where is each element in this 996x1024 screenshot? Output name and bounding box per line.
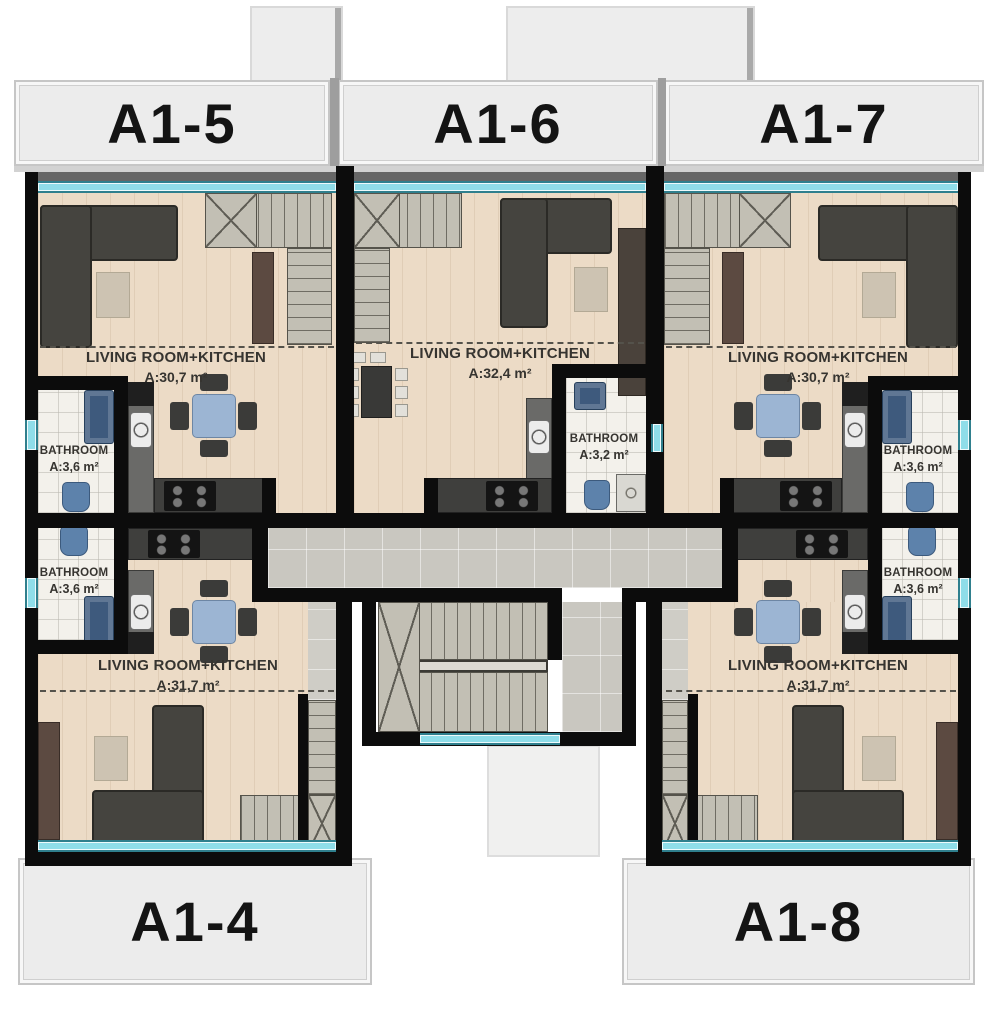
a1-4-bathroom-wall-bottom [25, 640, 128, 654]
a1-5-sofa-arm [40, 205, 92, 348]
a1-6-stairs-winder [354, 193, 400, 248]
unit-label-a1-6: A1-6 [338, 80, 658, 166]
a1-6-kitchen-sink [528, 420, 550, 454]
wall-a1-5-a1-6 [336, 166, 354, 520]
a1-5-rug [96, 272, 130, 318]
a1-7-chair [802, 402, 821, 430]
a1-8-stairs-flight [662, 700, 688, 795]
a1-6-rug [574, 267, 608, 312]
a1-8-sofa-back [792, 790, 904, 845]
a1-4-toilet [60, 526, 88, 556]
a1-5-living-label: LIVING ROOM+KITCHEN A:30,7 m² [46, 348, 306, 386]
a1-7-bathroom-label: BATHROOM A:3,6 m² [876, 444, 960, 475]
a1-5-dining-table [192, 394, 236, 438]
a1-7-chair [734, 402, 753, 430]
a1-6-chair [395, 404, 408, 417]
a1-7-kitchen-sink [844, 412, 866, 448]
unit-label-a1-7: A1-7 [664, 80, 984, 166]
room-area: A:3,6 m² [876, 581, 960, 597]
a1-5-chair [238, 402, 257, 430]
a1-7-stove [780, 481, 832, 511]
a1-7-kitchen-wall-stub [720, 478, 734, 528]
a1-8-appliance [842, 632, 868, 654]
a1-6-chair [395, 386, 408, 399]
stair-passage [562, 602, 622, 732]
a1-5-stove [164, 481, 216, 511]
a1-8-stove [796, 530, 848, 558]
room-area: A:30,7 m² [46, 368, 306, 386]
a1-8-dining-table [756, 600, 800, 644]
room-area: A:31,7 m² [58, 676, 318, 694]
stair-passage-wall [548, 588, 562, 660]
top-wall [25, 172, 971, 181]
room-name: BATHROOM [876, 566, 960, 581]
a1-8-stairs-side-wall [688, 694, 698, 852]
a1-7-stairs-winder [739, 193, 791, 248]
a1-5-kitchen-sink [130, 412, 152, 448]
a1-8-kitchen-sink [844, 594, 866, 630]
room-name: LIVING ROOM+KITCHEN [46, 348, 306, 368]
unit-label-a1-8: A1-8 [622, 858, 975, 985]
a1-8-rug [862, 736, 896, 781]
roof-protrusion-middle [506, 6, 755, 82]
room-area: A:31,7 m² [688, 676, 948, 694]
a1-8-chair [734, 608, 753, 636]
a1-6-toilet [584, 480, 610, 510]
roof-protrusion-bottom [487, 745, 600, 857]
unit-label-a1-5: A1-5 [14, 80, 330, 166]
room-area: A:32,4 m² [370, 364, 630, 382]
a1-8-window [662, 840, 958, 852]
unit-label-a1-4: A1-4 [18, 858, 372, 985]
room-name: LIVING ROOM+KITCHEN [688, 348, 948, 368]
room-name: BATHROOM [876, 444, 960, 459]
a1-4-sofa-back [92, 790, 204, 845]
room-name: LIVING ROOM+KITCHEN [58, 656, 318, 676]
a1-8-chair [802, 608, 821, 636]
a1-6-sofa-arm [500, 198, 548, 328]
central-stairs-window [420, 733, 560, 745]
roof-protrusion-left [250, 6, 343, 82]
a1-5-toilet [62, 482, 90, 512]
a1-4-chair [200, 580, 228, 597]
a1-4-chair [238, 608, 257, 636]
a1-4-bathroom-label: BATHROOM A:3,6 m² [32, 566, 116, 597]
a1-6-bathroom-label: BATHROOM A:3,2 m² [562, 432, 646, 463]
a1-4-appliance [128, 632, 154, 654]
a1-7-sofa-arm [906, 205, 958, 348]
floor-plan: A1-5 A1-6 A1-7 A1-4 A1-8 [0, 0, 996, 1024]
central-stairs-landing [378, 602, 420, 732]
mid-wall [25, 513, 971, 528]
label-divider-right [658, 78, 666, 166]
a1-4-window [38, 840, 336, 852]
wall-a1-6-a1-7 [646, 166, 664, 520]
a1-5-bathroom-wall-right [114, 376, 128, 528]
a1-6-bath-sink [574, 382, 606, 410]
a1-6-bathroom-window [651, 424, 663, 452]
a1-4-rug [94, 736, 128, 781]
a1-4-living-label: LIVING ROOM+KITCHEN A:31,7 m² [58, 656, 318, 694]
room-area: A:30,7 m² [688, 368, 948, 386]
room-name: LIVING ROOM+KITCHEN [370, 344, 630, 364]
corridor-bottom-wall-left [252, 588, 548, 602]
a1-4-kitchen-sink [130, 594, 152, 630]
central-stairs-left-wall [362, 588, 376, 746]
a1-5-chair [170, 402, 189, 430]
a1-8-living-label: LIVING ROOM+KITCHEN A:31,7 m² [688, 656, 948, 694]
central-stairs-right-wall [622, 588, 636, 746]
a1-8-chair [764, 580, 792, 597]
a1-7-wardrobe [722, 252, 744, 344]
room-name: BATHROOM [32, 444, 116, 459]
a1-8-tv-unit [936, 722, 958, 840]
a1-4-right-wall [336, 588, 352, 866]
a1-4-stairs-side-wall [298, 694, 308, 852]
bottom-wall-left [25, 852, 345, 866]
room-name: LIVING ROOM+KITCHEN [688, 656, 948, 676]
corridor-bottom-wall-right [622, 588, 738, 602]
a1-4-bathroom-wall-right [114, 528, 128, 654]
a1-7-toilet [906, 482, 934, 512]
a1-5-stairs-flight [287, 248, 332, 345]
a1-4-stairs-flight [308, 700, 336, 795]
a1-8-bathroom-wall-bottom [868, 640, 971, 654]
label-divider-left [330, 78, 339, 166]
a1-5-wardrobe [252, 252, 274, 344]
a1-6-window [354, 181, 646, 193]
a1-7-stairs-flight [664, 248, 710, 345]
a1-4-dining-table [192, 600, 236, 644]
a1-5-window [38, 181, 336, 193]
a1-8-left-wall [646, 588, 662, 866]
a1-6-shower [616, 474, 646, 512]
a1-6-stairs-flight [354, 248, 390, 343]
a1-7-window [664, 181, 958, 193]
a1-5-bathroom-label: BATHROOM A:3,6 m² [32, 444, 116, 475]
a1-7-chair [764, 440, 792, 457]
a1-7-bath-sink [882, 390, 912, 444]
a1-4-tv-unit [38, 722, 60, 840]
a1-7-living-label: LIVING ROOM+KITCHEN A:30,7 m² [688, 348, 948, 386]
a1-7-dining-table [756, 394, 800, 438]
room-area: A:3,6 m² [32, 581, 116, 597]
a1-5-kitchen-wall-stub [262, 478, 276, 528]
a1-7-rug [862, 272, 896, 318]
a1-5-bath-sink [84, 390, 114, 444]
a1-8-bathroom-label: BATHROOM A:3,6 m² [876, 566, 960, 597]
bottom-wall-right [650, 852, 971, 866]
a1-4-chair [170, 608, 189, 636]
room-name: BATHROOM [32, 566, 116, 581]
a1-5-stairs-winder [205, 193, 257, 248]
a1-5-chair [200, 440, 228, 457]
room-area: A:3,6 m² [876, 459, 960, 475]
a1-8-toilet [908, 526, 936, 556]
a1-6-living-label: LIVING ROOM+KITCHEN A:32,4 m² [370, 344, 630, 382]
corridor [268, 528, 722, 588]
room-area: A:3,2 m² [562, 447, 646, 463]
a1-6-stove [486, 481, 538, 511]
a1-4-stove [148, 530, 200, 558]
a1-8-entry-hall [662, 602, 688, 700]
room-area: A:3,6 m² [32, 459, 116, 475]
room-name: BATHROOM [562, 432, 646, 447]
a1-6-kitchen-wall-stub [424, 478, 438, 528]
